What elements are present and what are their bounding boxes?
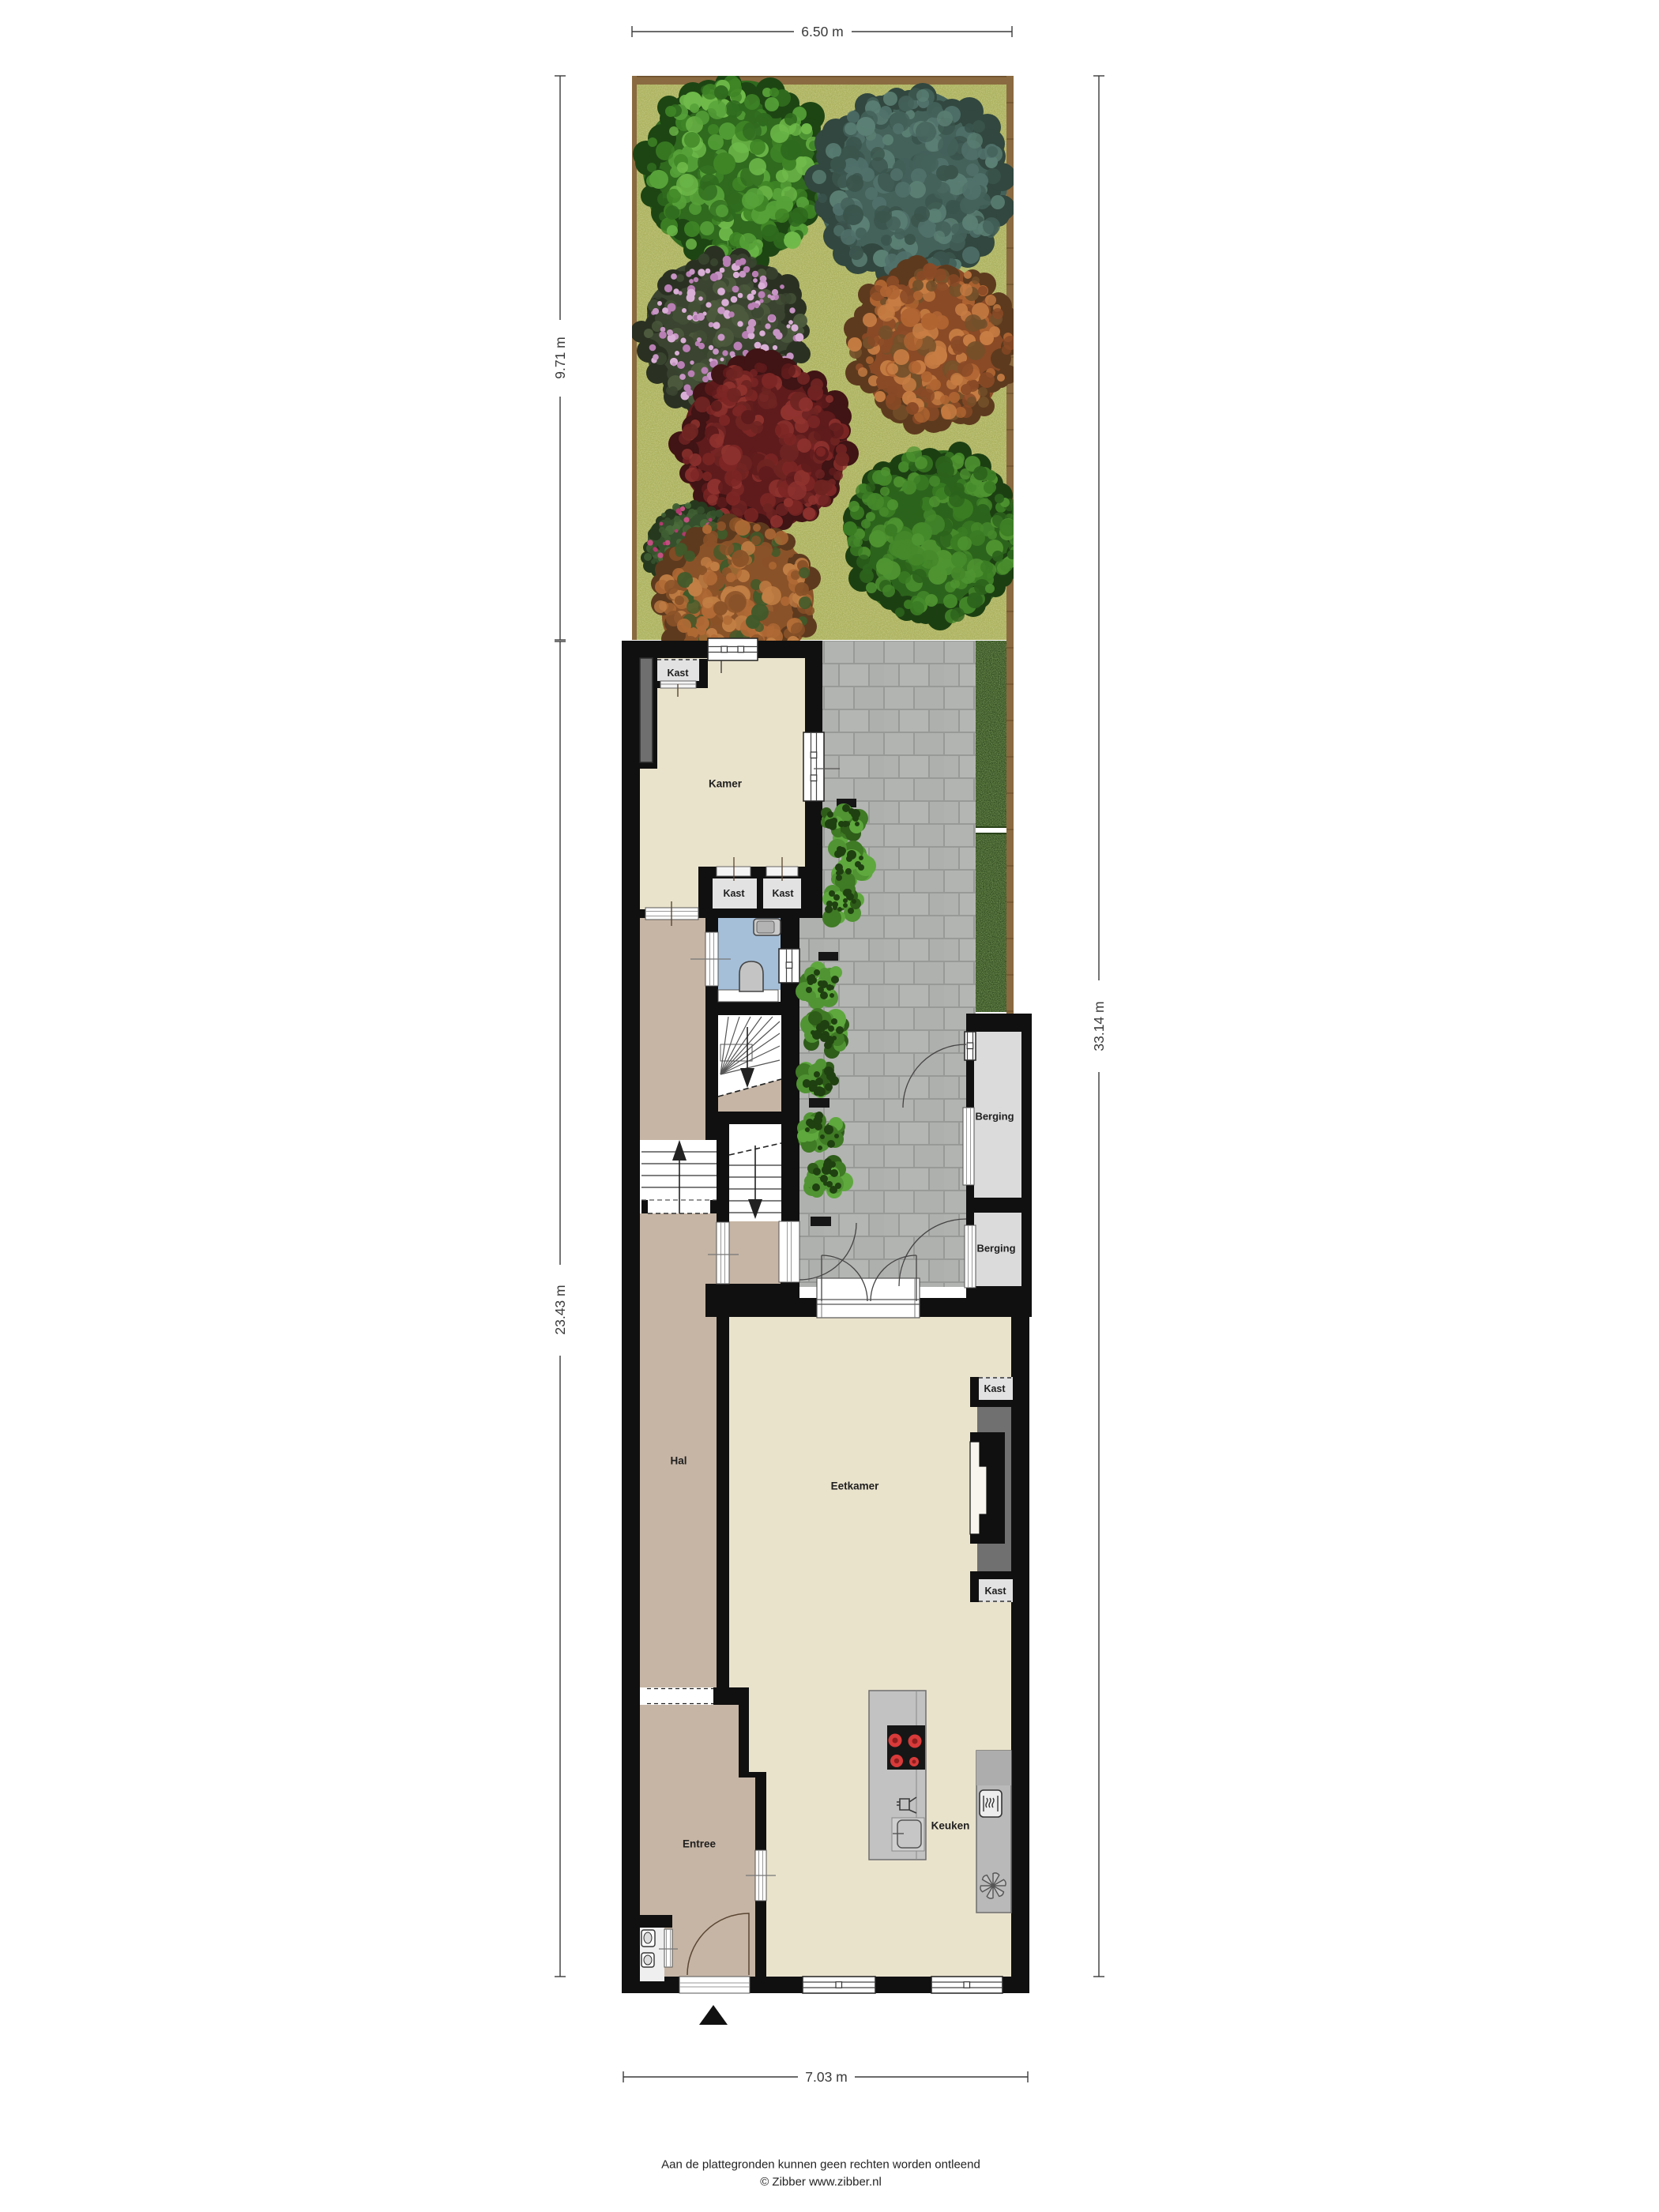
svg-text:Kast: Kast — [667, 668, 689, 679]
svg-text:6.50 m: 6.50 m — [801, 24, 844, 39]
svg-text:33.14 m: 33.14 m — [1091, 1001, 1107, 1051]
svg-text:Kast: Kast — [984, 1586, 1006, 1597]
svg-text:Kast: Kast — [772, 888, 794, 899]
svg-text:© Zibber www.zibber.nl: © Zibber www.zibber.nl — [760, 2176, 882, 2189]
svg-text:Kamer: Kamer — [709, 778, 743, 790]
svg-text:Berging: Berging — [975, 1111, 1014, 1123]
svg-text:9.71 m: 9.71 m — [552, 337, 568, 379]
svg-text:Entree: Entree — [683, 1838, 717, 1850]
svg-text:Hal: Hal — [670, 1455, 687, 1467]
svg-text:Aan de plattegronden kunnen ge: Aan de plattegronden kunnen geen rechten… — [661, 2158, 980, 2172]
svg-text:Keuken: Keuken — [931, 1820, 970, 1832]
svg-text:Berging: Berging — [976, 1243, 1015, 1255]
svg-text:Eetkamer: Eetkamer — [831, 1480, 880, 1492]
svg-text:23.43 m: 23.43 m — [552, 1285, 568, 1334]
svg-text:Kast: Kast — [984, 1383, 1006, 1394]
svg-text:7.03 m: 7.03 m — [805, 2069, 848, 2085]
svg-text:Kast: Kast — [723, 888, 745, 899]
